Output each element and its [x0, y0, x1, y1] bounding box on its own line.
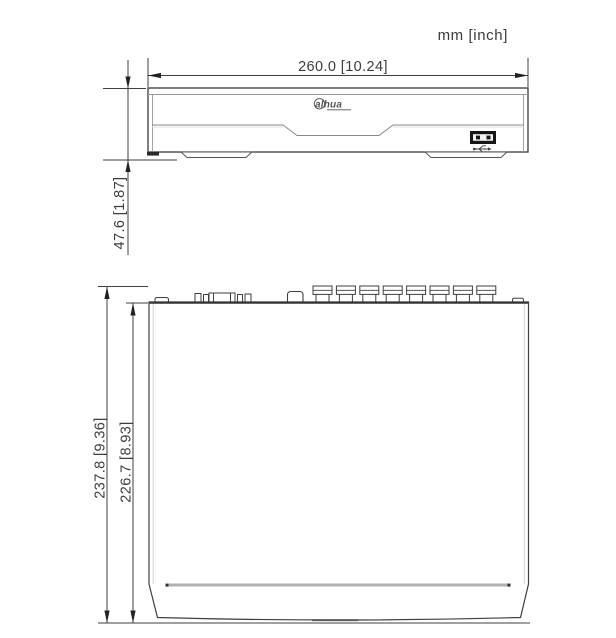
arrowhead-up-icon — [125, 160, 130, 172]
top-view-outline — [149, 302, 529, 620]
dim-width-label: 260.0 [10.24] — [298, 59, 388, 75]
usb-pin — [487, 136, 491, 140]
bnc-connector — [477, 286, 496, 303]
bnc-connector — [313, 286, 332, 303]
power-connector — [288, 292, 304, 303]
dim-depth-inner-label: 226.7 [8.93] — [119, 421, 135, 502]
dim-height-label: 47.6 [1.87] — [112, 177, 128, 250]
io-connector — [204, 295, 209, 303]
front-view: alhua — [147, 88, 528, 158]
arrowhead-down-icon — [130, 611, 135, 624]
arrowhead-down-icon — [104, 611, 109, 624]
bnc-connector — [453, 286, 472, 303]
arrowhead-down-icon — [125, 77, 130, 89]
chassis-line — [166, 584, 511, 587]
device-foot-left — [181, 152, 252, 158]
device-foot-right — [425, 152, 507, 158]
corner-nub — [147, 152, 159, 156]
usb-pin — [476, 136, 480, 140]
io-connector — [238, 295, 243, 303]
bnc-connector — [430, 286, 449, 303]
rear-connectors — [155, 286, 524, 303]
arrowhead-up-icon — [130, 303, 135, 316]
dimension-drawing-page: mm [inch] 260.0 [10.24] 47.6 [1.87] alhu… — [0, 0, 616, 638]
units-label: mm [inch] — [438, 27, 508, 44]
dahua-logo-text: alhua — [315, 100, 342, 111]
bnc-connector — [336, 286, 355, 303]
bnc-connector — [360, 286, 379, 303]
io-connector — [195, 294, 201, 303]
bnc-connectors — [313, 286, 496, 303]
dim-depth-inner: 226.7 [8.93] — [119, 303, 149, 623]
vga-connector — [209, 293, 235, 302]
bnc-connector — [407, 286, 426, 303]
bnc-connector — [383, 286, 402, 303]
dim-depth-outer-label: 237.8 [9.36] — [93, 417, 109, 498]
dim-width: 260.0 [10.24] — [148, 58, 528, 87]
arrowhead-left-icon — [148, 73, 161, 78]
arrowhead-right-icon — [515, 73, 528, 78]
arrowhead-up-icon — [104, 287, 109, 300]
screw-bump-left — [155, 298, 169, 303]
top-view — [149, 286, 529, 620]
io-connector — [245, 294, 251, 302]
dimension-drawing: mm [inch] 260.0 [10.24] 47.6 [1.87] alhu… — [0, 0, 616, 638]
